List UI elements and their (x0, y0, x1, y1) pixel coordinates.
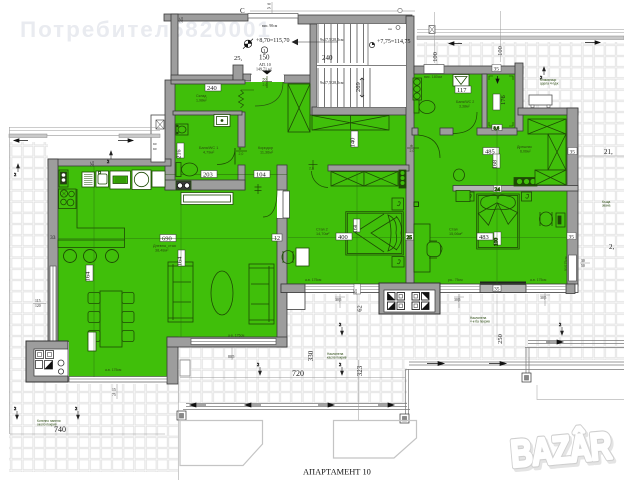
svg-text:а-в. 175см: а-в. 175см (305, 278, 322, 282)
svg-text:2: 2 (107, 159, 109, 164)
svg-text:250: 250 (497, 334, 504, 344)
svg-text:30: 30 (581, 259, 585, 263)
svg-text:168: 168 (493, 160, 499, 169)
svg-text:176: 176 (500, 95, 507, 106)
svg-text:690: 690 (162, 236, 172, 243)
svg-text:35: 35 (494, 67, 500, 73)
svg-text:104: 104 (256, 172, 267, 179)
svg-text:4,79м²: 4,79м² (203, 151, 215, 155)
svg-text:а-в. 175см: а-в. 175см (105, 368, 122, 372)
svg-text:Дрешник: Дрешник (517, 145, 532, 149)
svg-text:1,98м²: 1,98м² (196, 99, 207, 103)
svg-text:около покрив: около покрив (37, 423, 57, 427)
svg-text:80|5: 80|5 (228, 355, 235, 359)
svg-text:168: 168 (353, 224, 359, 233)
svg-text:звана: звана (602, 204, 611, 208)
svg-text:3,38м²: 3,38м² (459, 105, 470, 109)
svg-text:203: 203 (203, 172, 213, 179)
svg-text:323: 323 (356, 365, 364, 376)
svg-text:2: 2 (14, 406, 16, 411)
svg-text:Склад: Склад (196, 94, 207, 98)
svg-text:240: 240 (322, 54, 333, 62)
svg-text:2: 2 (75, 406, 77, 411)
svg-text:120: 120 (35, 304, 41, 308)
svg-text:12: 12 (274, 236, 280, 242)
svg-text:Дневна_стая: Дневна_стая (153, 244, 176, 248)
svg-text:30|5: 30|5 (540, 296, 547, 300)
svg-text:вис. 180см: вис. 180см (424, 75, 443, 79)
svg-text:11,36м²: 11,36м² (260, 151, 274, 155)
svg-text:35: 35 (353, 289, 359, 295)
svg-text:30|5: 30|5 (454, 298, 461, 302)
svg-text:2: 2 (339, 322, 341, 327)
svg-text:62: 62 (357, 305, 364, 312)
svg-text:35: 35 (569, 235, 575, 241)
svg-text:35: 35 (90, 161, 96, 167)
svg-text:пн: пн (388, 27, 392, 31)
svg-text:164: 164 (85, 271, 92, 282)
svg-text:33: 33 (50, 235, 56, 241)
svg-text:21,: 21, (604, 148, 613, 156)
svg-text:25: 25 (267, 6, 271, 10)
svg-text:38,48м²: 38,48м² (155, 249, 169, 253)
svg-text:30|5: 30|5 (335, 298, 342, 302)
svg-text:⊕: ⊕ (239, 147, 242, 151)
svg-text:+7,75=114,75: +7,75=114,75 (377, 39, 411, 45)
svg-text:2,: 2, (609, 243, 615, 251)
svg-text:а-в. 175см: а-в. 175см (530, 278, 547, 282)
svg-text:35: 35 (494, 287, 500, 293)
svg-text:25,: 25, (234, 55, 243, 62)
svg-text:15: 15 (112, 388, 116, 392)
svg-text:140: 140 (350, 138, 357, 148)
svg-text:14,70м²: 14,70м² (316, 232, 330, 236)
svg-text:⊕: ⊕ (410, 144, 413, 148)
svg-text:35: 35 (570, 150, 576, 156)
svg-text:25: 25 (407, 235, 413, 241)
svg-text:216: 216 (177, 150, 183, 159)
svg-text:2,0: 2,0 (309, 167, 314, 171)
svg-text:адела 4-пдж: адела 4-пдж (540, 82, 559, 86)
svg-text:Стая: Стая (449, 228, 458, 232)
svg-text:75: 75 (112, 393, 116, 397)
svg-text:+8,70=115,70: +8,70=115,70 (256, 38, 290, 44)
svg-text:240: 240 (207, 85, 217, 92)
svg-text:касла покрив: касла покрив (327, 356, 347, 360)
svg-text:Баня/WC 1: Баня/WC 1 (199, 146, 218, 150)
svg-text:2: 2 (559, 322, 561, 327)
svg-text:«-к-ба покрив: «-к-ба покрив (470, 320, 490, 324)
svg-text:50: 50 (581, 264, 585, 268)
svg-text:60: 60 (153, 147, 157, 151)
svg-text:483: 483 (479, 234, 489, 241)
svg-text:АПАРТАМЕНТ 10: АПАРТАМЕНТ 10 (303, 468, 371, 477)
svg-text:400: 400 (338, 234, 348, 241)
svg-text:115: 115 (35, 299, 41, 303)
svg-text:C: C (240, 7, 245, 15)
svg-text:330: 330 (307, 350, 315, 361)
svg-text:6,06м²: 6,06м² (520, 150, 531, 154)
svg-text:ра-. 75см: ра-. 75см (448, 278, 463, 282)
svg-text:Коридор: Коридор (258, 146, 273, 150)
svg-text:720: 720 (292, 369, 304, 378)
svg-text:90/175см: 90/175см (564, 256, 568, 271)
svg-text:150: 150 (259, 54, 270, 62)
svg-text:100: 100 (432, 52, 439, 62)
svg-text:117: 117 (457, 87, 467, 94)
svg-text:100: 100 (494, 238, 500, 247)
svg-text:2: 2 (14, 172, 16, 177)
svg-text:2,0: 2,0 (263, 83, 268, 87)
svg-text:2: 2 (339, 362, 341, 367)
svg-text:50: 50 (263, 78, 267, 82)
svg-text:164: 164 (177, 256, 184, 267)
svg-text:2,0: 2,0 (239, 152, 244, 156)
svg-text:2,0: 2,0 (410, 149, 415, 153)
svg-text:а-в. 175см: а-в. 175см (228, 334, 245, 338)
svg-text:24: 24 (495, 187, 501, 193)
svg-text:Стая 2: Стая 2 (316, 228, 328, 232)
svg-text:35: 35 (179, 17, 185, 23)
svg-text:60: 60 (153, 142, 157, 146)
svg-text:вис. 90см: вис. 90см (262, 24, 278, 28)
svg-text:2: 2 (257, 362, 259, 367)
svg-text:15,06м²: 15,06м² (449, 232, 463, 236)
svg-text:269: 269 (355, 82, 362, 92)
svg-text:Баня/WC 2: Баня/WC 2 (456, 100, 474, 104)
